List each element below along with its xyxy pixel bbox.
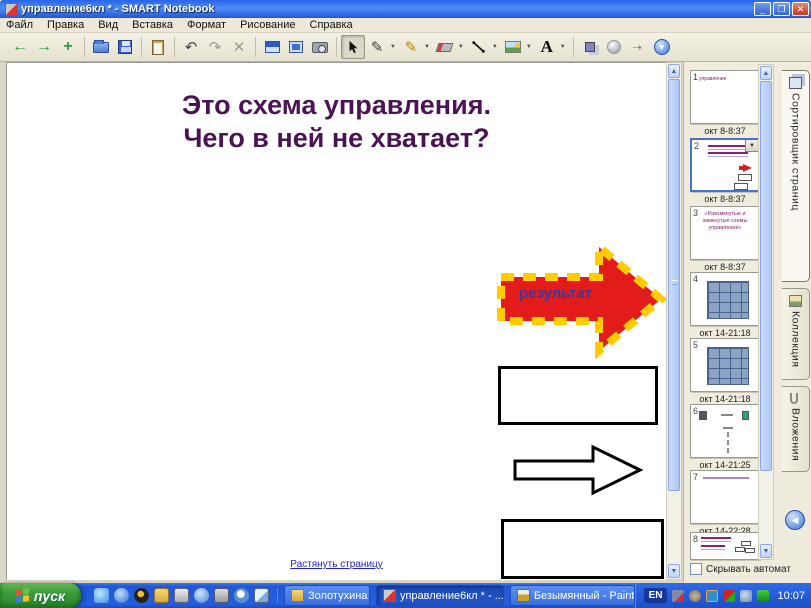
notebook-icon [383, 589, 396, 602]
creative-pen-dropdown-icon[interactable]: ▼ [424, 44, 430, 50]
explorer-icon[interactable] [194, 588, 209, 603]
system-tray: EN 10:07 [635, 583, 811, 608]
delete-icon[interactable]: ✕ [227, 35, 251, 59]
menu-bar: Файл Правка Вид Вставка Формат Рисование… [0, 18, 811, 33]
scroll-up-icon[interactable]: ▲ [760, 66, 772, 80]
page-caption: окт 8-8:37 [690, 126, 760, 136]
eraser-tool-icon[interactable] [433, 35, 457, 59]
scroll-down-icon[interactable]: ▼ [668, 564, 680, 578]
page-thumbnail-7[interactable]: 7 окт 14-22:28 [690, 470, 760, 536]
tab-attachments[interactable]: Вложения [782, 386, 810, 472]
tab-gallery[interactable]: Коллекция [782, 288, 810, 380]
creative-pen-tool-icon[interactable]: ✎ [399, 35, 423, 59]
folder-icon[interactable] [154, 588, 169, 603]
properties-icon[interactable] [578, 35, 602, 59]
redo-icon[interactable]: ↷ [203, 35, 227, 59]
menu-file[interactable]: Файл [6, 19, 33, 31]
restore-button[interactable]: ❐ [773, 2, 790, 16]
page-thumbnail-4[interactable]: 4 окт 14-21:18 [690, 272, 760, 338]
heading-line2: Чего в ней не хватает? [7, 122, 666, 155]
screen-shade-icon[interactable] [260, 35, 284, 59]
page-caption: окт 14-21:25 [690, 460, 760, 470]
page-caption: окт 14-21:18 [690, 328, 760, 338]
paint-app-icon [517, 589, 530, 602]
offline-icon[interactable] [672, 590, 684, 602]
autohide-label: Скрывать автомат [706, 564, 791, 575]
search-icon[interactable] [234, 588, 249, 603]
main-toolbar: ← → + ↶ ↷ ✕ ✎▼ ✎▼ ▼ ▼ ▼ A▼ ⇢ ▼ [0, 33, 811, 62]
open-icon[interactable] [89, 35, 113, 59]
menu-insert[interactable]: Вставка [132, 19, 173, 31]
window-title: управление6кл * - SMART Notebook [21, 3, 752, 15]
paint-icon[interactable] [254, 588, 269, 603]
outline-arrow-shape[interactable] [513, 444, 643, 496]
toolbar-separator [573, 37, 574, 57]
full-screen-icon[interactable] [284, 35, 308, 59]
main-area: Это схема управления. Чего в ней не хват… [0, 62, 811, 583]
heading-line1: Это схема управления. [7, 89, 666, 122]
page-thumbnail-8[interactable]: 8 [690, 532, 760, 560]
line-dropdown-icon[interactable]: ▼ [492, 44, 498, 50]
undo-icon[interactable]: ↶ [179, 35, 203, 59]
smart-notebook-window: управление6кл * - SMART Notebook _ ❐ ✕ Ф… [0, 0, 811, 608]
network-icon[interactable] [757, 590, 769, 602]
toolbar-separator [255, 37, 256, 57]
open-folder-icon [291, 589, 304, 602]
chat-icon[interactable] [706, 590, 718, 602]
page-canvas[interactable]: Это схема управления. Чего в ней не хват… [6, 62, 666, 580]
sorter-scrollbar[interactable]: ▲ ▼ [758, 64, 774, 560]
result-arrow-label: результат [519, 285, 592, 302]
page-thumbnail-5[interactable]: 5 окт 14-21:18 [690, 338, 760, 404]
antivirus-icon[interactable] [723, 590, 735, 602]
autohide-checkbox[interactable] [690, 563, 702, 575]
transparency-icon[interactable] [602, 35, 626, 59]
autohide-row: Скрывать автомат [690, 563, 791, 575]
dock-toolbar-icon[interactable]: ▼ [650, 35, 674, 59]
rectangle-shape-top[interactable] [498, 366, 658, 425]
page-thumbnail-1[interactable]: 1 управление окт 8-8:37 [690, 70, 760, 136]
paperclip-icon [790, 393, 798, 404]
menu-help[interactable]: Справка [310, 19, 353, 31]
page-heading[interactable]: Это схема управления. Чего в ней не хват… [7, 89, 666, 155]
thumbnail-note: управление [699, 76, 726, 82]
tab-page-sorter[interactable]: Сортировщик страниц [782, 70, 810, 282]
gallery-icon [789, 295, 802, 307]
scrollbar-thumb[interactable] [760, 81, 772, 471]
word-icon[interactable] [214, 588, 229, 603]
picture-dropdown-icon[interactable]: ▼ [526, 44, 532, 50]
picture-tool-icon[interactable] [501, 35, 525, 59]
page-sorter-panel: 1 управление окт 8-8:37 2 ▼ окт 8-8:37 [683, 62, 811, 583]
taskbar: пуск Золотухина управление6кл * - ... Бе… [0, 583, 811, 608]
ie-icon[interactable] [114, 588, 129, 603]
line-tool-icon[interactable] [467, 35, 491, 59]
volume-icon[interactable] [740, 590, 752, 602]
quick-launch [85, 588, 278, 603]
page-caption: окт 8-8:37 [690, 194, 760, 204]
toolbar-separator [141, 37, 142, 57]
start-button[interactable]: пуск [0, 583, 81, 608]
text-dropdown-icon[interactable]: ▼ [560, 44, 566, 50]
media-player-icon[interactable] [134, 588, 149, 603]
close-button[interactable]: ✕ [792, 2, 809, 16]
toolbar-separator [84, 37, 85, 57]
stretch-page-link[interactable]: Растянуть страницу [7, 559, 666, 570]
messenger-icon[interactable] [94, 588, 109, 603]
toolbar-separator [174, 37, 175, 57]
taskbar-clock[interactable]: 10:07 [774, 590, 805, 602]
result-arrow-shape[interactable]: результат [495, 239, 666, 359]
minimize-button[interactable]: _ [754, 2, 771, 16]
windows-logo-icon [16, 588, 29, 603]
select-tool-icon[interactable] [341, 35, 365, 59]
menu-draw[interactable]: Рисование [240, 19, 295, 31]
thumbnail-note: «Разомкнутые и замкнутые схемы управлени… [695, 211, 755, 232]
side-tabstrip: Сортировщик страниц Коллекция Вложения ◀ [780, 62, 811, 583]
pen-tool-icon[interactable]: ✎ [365, 35, 389, 59]
app-icon[interactable] [5, 3, 18, 16]
taskbar-button-notebook[interactable]: управление6кл * - ... [376, 585, 504, 606]
taskbar-button-folder[interactable]: Золотухина [284, 585, 370, 606]
previous-page-icon[interactable]: ← [8, 35, 32, 59]
capture-icon[interactable] [308, 35, 332, 59]
save-icon[interactable] [113, 35, 137, 59]
menu-format[interactable]: Формат [187, 19, 226, 31]
page-thumbnail-3[interactable]: 3 «Разомкнутые и замкнутые схемы управле… [690, 206, 760, 272]
page-menu-dropdown-icon[interactable]: ▼ [745, 139, 759, 152]
pen-dropdown-icon[interactable]: ▼ [390, 44, 396, 50]
menu-edit[interactable]: Правка [47, 19, 84, 31]
text-tool-icon[interactable]: A [535, 35, 559, 59]
scrollbar-thumb[interactable] [668, 79, 680, 491]
move-toolbar-icon[interactable]: ⇢ [626, 35, 650, 59]
update-icon[interactable] [689, 590, 701, 602]
language-indicator[interactable]: EN [644, 588, 668, 603]
collapse-sidebar-icon[interactable]: ◀ [785, 510, 805, 530]
page-thumbnail-2-selected[interactable]: 2 ▼ окт 8-8:37 [690, 138, 760, 204]
scroll-up-icon[interactable]: ▲ [668, 64, 680, 78]
canvas-scrollbar[interactable]: ▲ ▼ [666, 62, 682, 580]
menu-view[interactable]: Вид [98, 19, 118, 31]
page-thumbnail-6[interactable]: 6 окт 14-21:25 [690, 404, 760, 470]
next-page-icon[interactable]: → [32, 35, 56, 59]
toolbar-separator [336, 37, 337, 57]
page-caption: окт 8-8:37 [690, 262, 760, 272]
rectangle-shape-bottom[interactable] [501, 519, 664, 579]
calculator-icon[interactable] [174, 588, 189, 603]
add-page-icon[interactable]: + [56, 35, 80, 59]
eraser-dropdown-icon[interactable]: ▼ [458, 44, 464, 50]
title-bar: управление6кл * - SMART Notebook _ ❐ ✕ [0, 0, 811, 18]
page-sorter-icon [789, 77, 802, 89]
paste-icon[interactable] [146, 35, 170, 59]
taskbar-button-paint[interactable]: Безымянный - Paint [510, 585, 635, 606]
scroll-down-icon[interactable]: ▼ [760, 544, 772, 558]
page-caption: окт 14-21:18 [690, 394, 760, 404]
